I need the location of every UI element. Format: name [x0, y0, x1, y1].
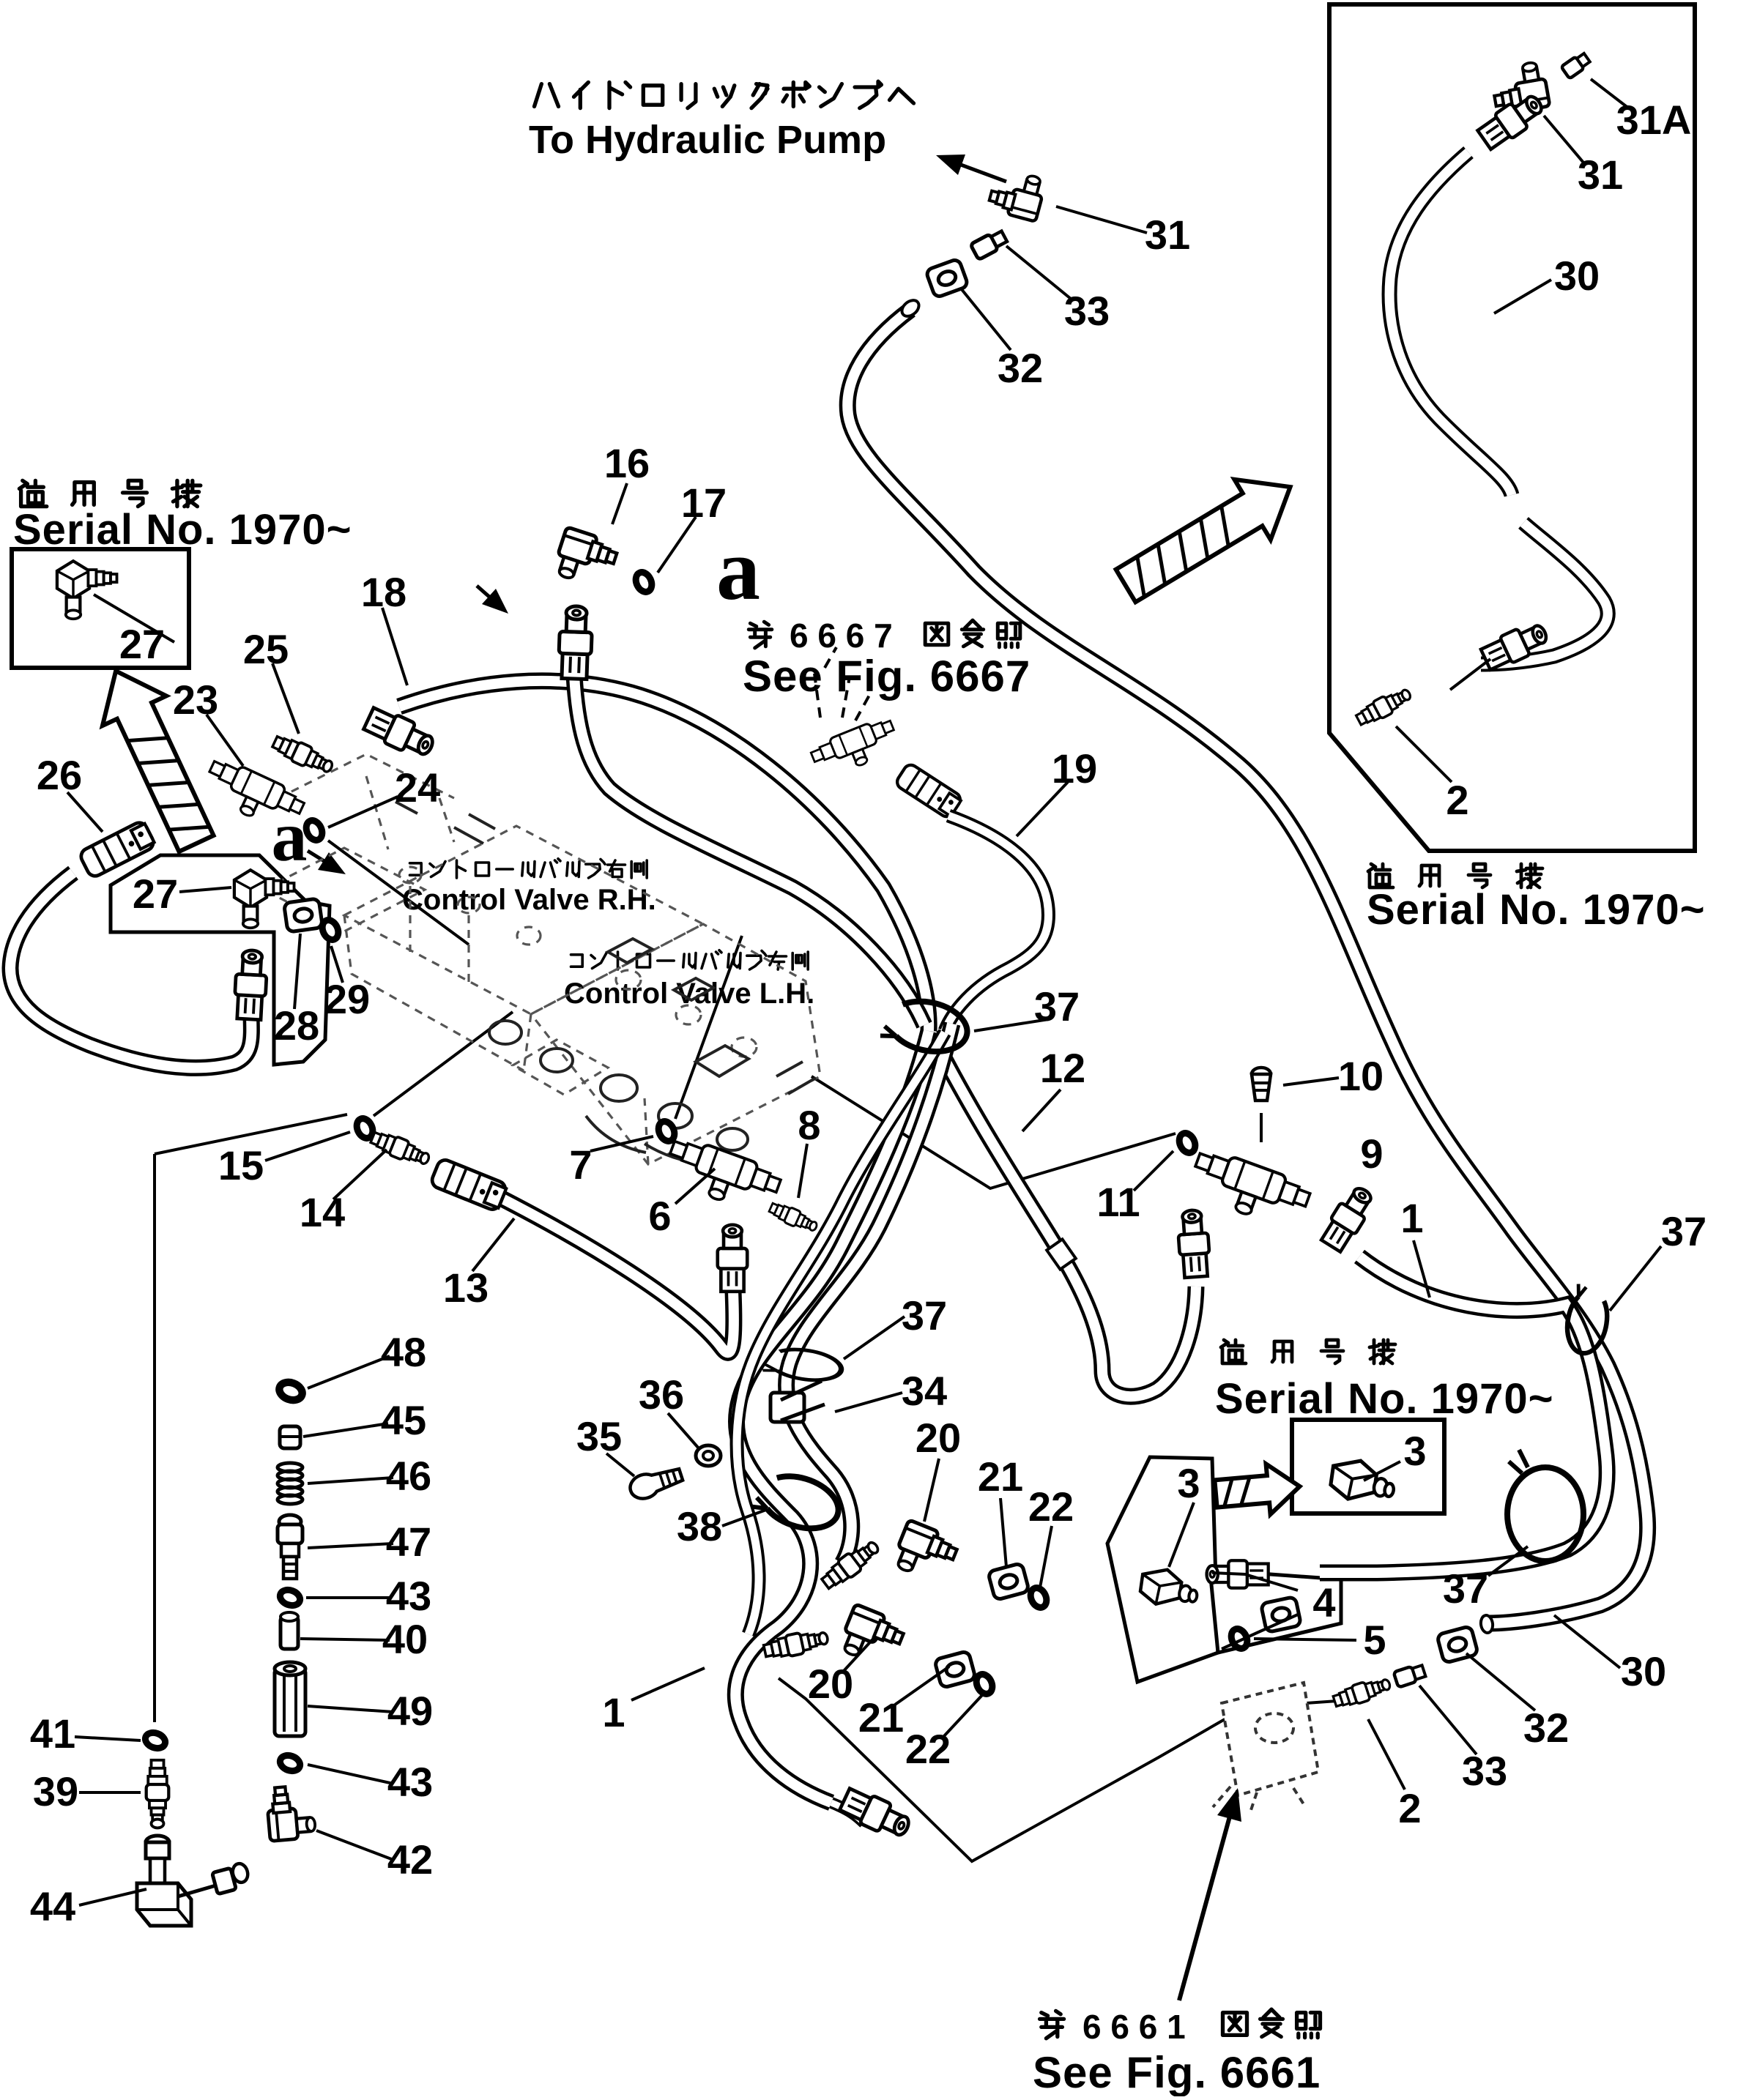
- svg-text:9: 9: [1360, 1131, 1383, 1177]
- svg-text:27: 27: [119, 621, 165, 667]
- svg-text:42: 42: [387, 1836, 433, 1883]
- svg-text:37: 37: [1661, 1208, 1707, 1254]
- svg-text:Serial No. 1970~: Serial No. 1970~: [1367, 886, 1706, 934]
- svg-text:46: 46: [386, 1453, 431, 1499]
- svg-text:34: 34: [902, 1368, 947, 1414]
- svg-text:20: 20: [808, 1661, 853, 1707]
- svg-text:6 6 6 7: 6 6 6 7: [790, 617, 893, 655]
- svg-text:See Fig. 6661: See Fig. 6661: [1033, 2048, 1321, 2096]
- svg-text:7: 7: [569, 1142, 592, 1188]
- svg-text:31A: 31A: [1616, 97, 1692, 143]
- svg-text:36: 36: [639, 1371, 684, 1418]
- svg-text:31: 31: [1145, 212, 1190, 258]
- svg-text:Control Valve R.H.: Control Valve R.H.: [402, 884, 656, 916]
- svg-text:30: 30: [1621, 1648, 1666, 1694]
- svg-text:43: 43: [387, 1759, 433, 1805]
- svg-text:a: a: [716, 521, 760, 618]
- svg-text:30: 30: [1554, 253, 1600, 299]
- svg-text:31: 31: [1578, 152, 1623, 198]
- svg-text:12: 12: [1040, 1045, 1085, 1091]
- svg-text:48: 48: [381, 1329, 426, 1375]
- svg-text:32: 32: [1523, 1705, 1569, 1751]
- svg-text:28: 28: [274, 1002, 319, 1049]
- svg-text:25: 25: [243, 626, 289, 672]
- svg-text:14: 14: [300, 1189, 345, 1235]
- svg-text:15: 15: [218, 1142, 264, 1188]
- svg-text:29: 29: [324, 976, 370, 1022]
- svg-text:13: 13: [443, 1265, 489, 1311]
- svg-text:21: 21: [858, 1694, 904, 1740]
- svg-text:17: 17: [681, 480, 727, 526]
- svg-text:6 6 6 1: 6 6 6 1: [1082, 2008, 1186, 2046]
- svg-text:2: 2: [1446, 777, 1468, 823]
- svg-text:33: 33: [1462, 1748, 1507, 1794]
- svg-text:Serial No. 1970~: Serial No. 1970~: [13, 506, 352, 554]
- svg-text:See Fig. 6667: See Fig. 6667: [743, 652, 1030, 701]
- svg-text:37: 37: [1034, 983, 1080, 1029]
- svg-text:22: 22: [1028, 1483, 1074, 1530]
- svg-text:44: 44: [30, 1883, 75, 1929]
- svg-text:4: 4: [1312, 1579, 1335, 1626]
- svg-text:To Hydraulic Pump: To Hydraulic Pump: [529, 118, 886, 162]
- svg-text:6: 6: [648, 1193, 671, 1239]
- svg-text:16: 16: [604, 440, 650, 486]
- svg-text:1: 1: [602, 1689, 625, 1735]
- svg-text:45: 45: [381, 1397, 426, 1443]
- svg-text:37: 37: [1443, 1565, 1488, 1612]
- svg-text:27: 27: [133, 871, 178, 917]
- svg-text:39: 39: [33, 1768, 78, 1814]
- svg-text:37: 37: [902, 1292, 947, 1338]
- svg-text:3: 3: [1177, 1460, 1200, 1506]
- svg-text:49: 49: [387, 1688, 433, 1734]
- svg-text:47: 47: [386, 1519, 431, 1565]
- svg-text:33: 33: [1064, 288, 1110, 334]
- svg-text:19: 19: [1052, 745, 1097, 792]
- svg-text:20: 20: [916, 1415, 961, 1461]
- svg-text:8: 8: [798, 1102, 820, 1148]
- svg-text:5: 5: [1363, 1617, 1386, 1663]
- svg-text:23: 23: [173, 677, 218, 723]
- svg-text:24: 24: [395, 764, 440, 811]
- svg-text:3: 3: [1403, 1428, 1426, 1474]
- svg-text:32: 32: [998, 345, 1043, 391]
- svg-text:22: 22: [905, 1726, 951, 1772]
- svg-text:43: 43: [386, 1573, 431, 1619]
- svg-text:40: 40: [382, 1616, 428, 1662]
- svg-text:38: 38: [677, 1503, 722, 1549]
- svg-text:18: 18: [361, 569, 406, 615]
- svg-text:2: 2: [1398, 1785, 1421, 1831]
- svg-text:Serial No. 1970~: Serial No. 1970~: [1215, 1375, 1554, 1423]
- svg-text:26: 26: [37, 752, 82, 798]
- svg-text:41: 41: [30, 1710, 75, 1757]
- svg-text:10: 10: [1338, 1053, 1384, 1099]
- svg-text:35: 35: [576, 1413, 622, 1459]
- svg-text:11: 11: [1096, 1179, 1140, 1225]
- svg-text:1: 1: [1400, 1195, 1423, 1241]
- svg-text:21: 21: [978, 1453, 1023, 1500]
